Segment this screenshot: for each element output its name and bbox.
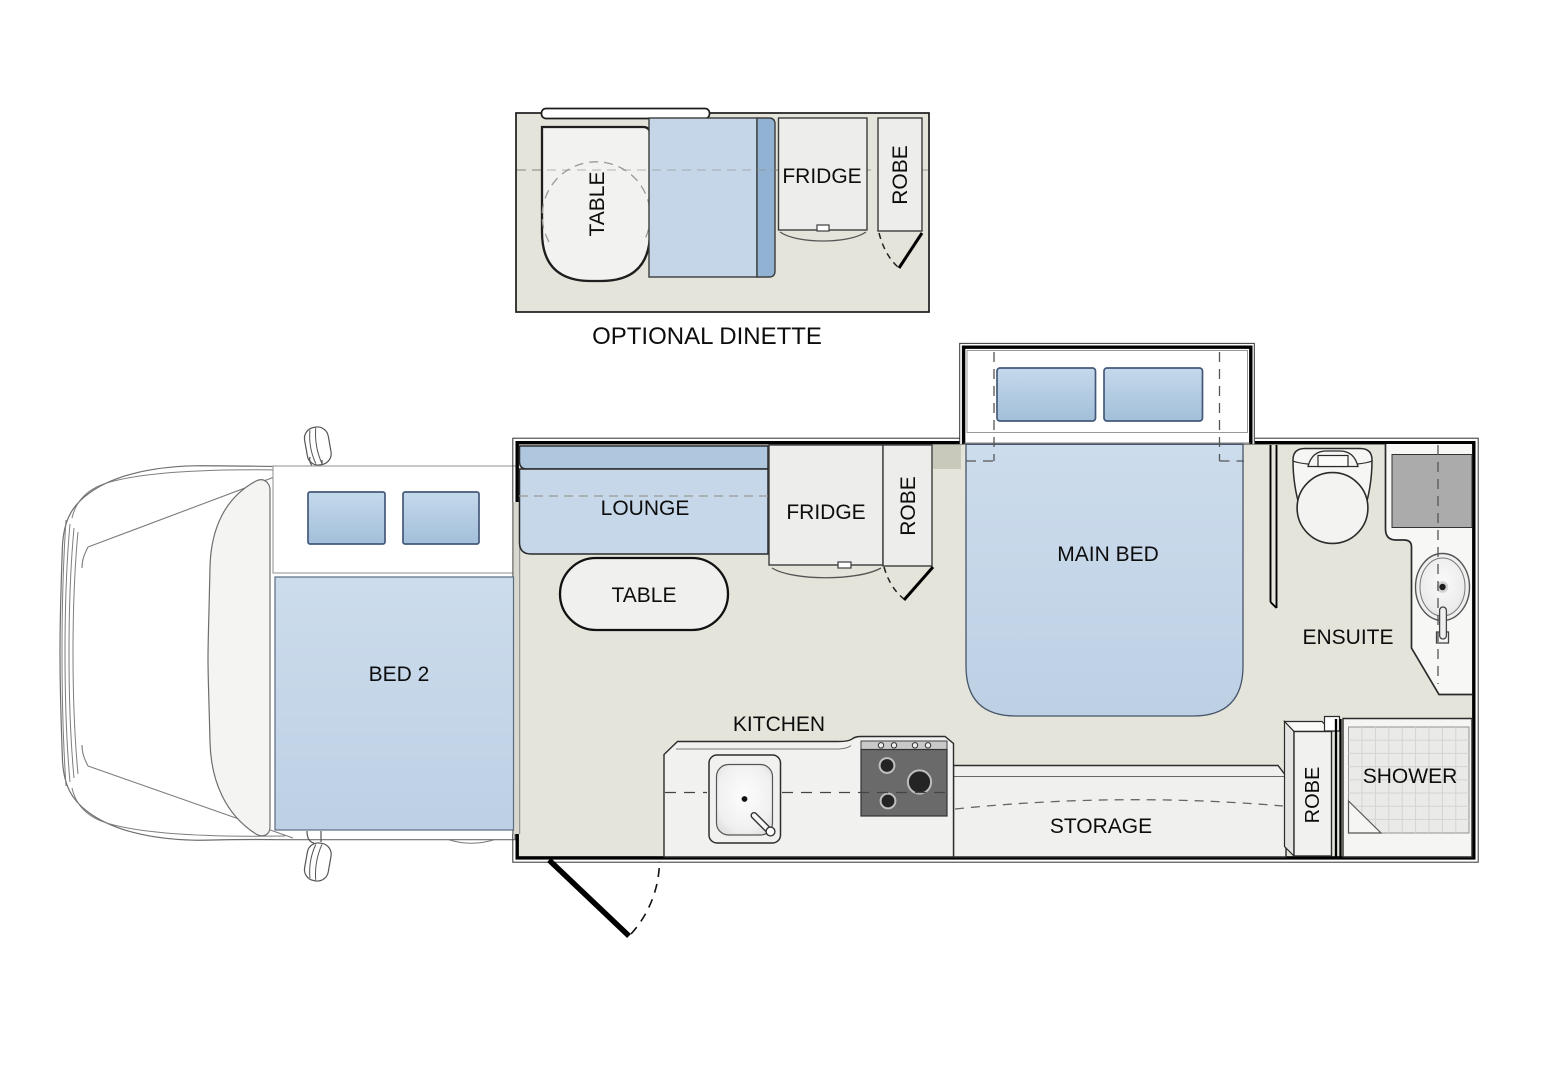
svg-text:ROBE: ROBE (889, 145, 912, 205)
svg-text:LOUNGE: LOUNGE (601, 497, 690, 520)
svg-text:TABLE: TABLE (612, 584, 677, 607)
svg-text:MAIN BED: MAIN BED (1057, 543, 1159, 566)
svg-text:KITCHEN: KITCHEN (733, 713, 825, 736)
svg-text:OPTIONAL DINETTE: OPTIONAL DINETTE (592, 323, 822, 350)
svg-text:ROBE: ROBE (1302, 767, 1324, 824)
svg-text:BED 2: BED 2 (369, 663, 430, 686)
svg-text:FRIDGE: FRIDGE (786, 501, 865, 524)
svg-text:FRIDGE: FRIDGE (782, 165, 861, 188)
svg-text:STORAGE: STORAGE (1050, 815, 1152, 838)
svg-text:ROBE: ROBE (897, 476, 920, 536)
svg-text:SHOWER: SHOWER (1363, 765, 1458, 788)
svg-text:TABLE: TABLE (586, 172, 609, 237)
svg-text:ENSUITE: ENSUITE (1302, 626, 1393, 649)
